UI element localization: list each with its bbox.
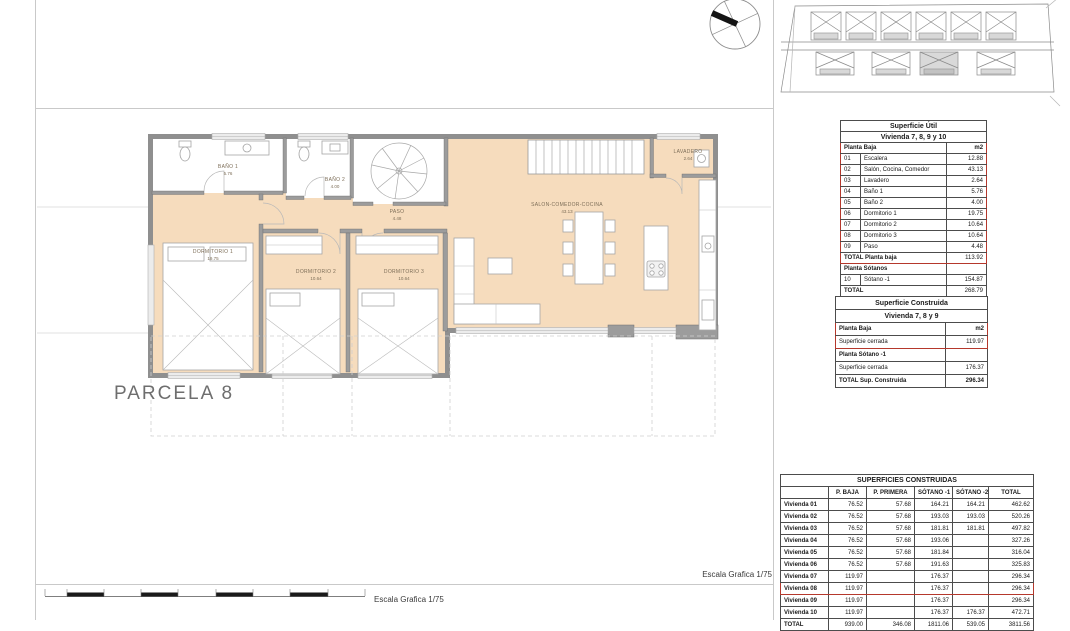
table-row: Vivienda 0476.5257.68193.06327.26 xyxy=(781,535,1034,547)
table-title-row: Superficie Construida xyxy=(836,297,988,310)
table-cell: Paso xyxy=(861,242,947,253)
table-cell: 10.64 xyxy=(947,231,987,242)
kitchen-counter xyxy=(699,180,716,330)
table-cell: 76.52 xyxy=(829,499,867,511)
table-row: Vivienda 0376.5257.68181.81181.81497.82 xyxy=(781,523,1034,535)
table-row: 10Sótano -1154.87 xyxy=(841,275,987,286)
table-cell: 296.34 xyxy=(989,571,1034,583)
staircase xyxy=(528,140,644,174)
table-row: Superficie cerrada176.37 xyxy=(836,362,988,375)
superficies-construidas-table: SUPERFICIES CONSTRUIDASP. BAJAP. PRIMERA… xyxy=(780,474,1034,631)
room-label: DORMITORIO 210.64 xyxy=(296,269,336,281)
table-cell: 181.84 xyxy=(915,547,953,559)
table-cell: 181.81 xyxy=(953,523,989,535)
table-cell: 164.21 xyxy=(915,499,953,511)
table-cell: P. BAJA xyxy=(829,487,867,499)
table-cell: TOTAL xyxy=(841,286,947,297)
table-cell: 57.68 xyxy=(867,511,915,523)
site-house-row-top xyxy=(811,12,1016,40)
kitchen-island xyxy=(644,226,668,290)
table-cell: 164.21 xyxy=(953,499,989,511)
table-row: 07Dormitorio 210.64 xyxy=(841,220,987,231)
table-cell: Dormitorio 2 xyxy=(861,220,947,231)
grand-total-row: TOTAL268.79 xyxy=(841,286,987,297)
table-row: TOTAL939.00346.081811.06539.053811.56 xyxy=(781,619,1034,631)
table-cell xyxy=(953,583,989,595)
table-row: 05Baño 24.00 xyxy=(841,198,987,209)
table-cell: 176.37 xyxy=(946,362,988,375)
section-header-row: Planta Sótanos xyxy=(841,264,987,275)
table-cell: Planta Sótano -1 xyxy=(836,349,946,362)
toilet-icon xyxy=(298,141,310,161)
table-cell: 5.76 xyxy=(947,187,987,198)
architectural-drawing-sheet: { "labels": { "parcela": "PARCELA 8", "e… xyxy=(0,0,1070,620)
table-row: Vivienda 0676.5257.68191.63325.83 xyxy=(781,559,1034,571)
table-cell: 12.88 xyxy=(947,154,987,165)
table-cell: 02 xyxy=(841,165,861,176)
table-cell: Planta Sótanos xyxy=(841,264,947,275)
table-cell: 193.03 xyxy=(953,511,989,523)
table-cell: Superficie cerrada xyxy=(836,336,946,349)
table-cell: 191.63 xyxy=(915,559,953,571)
table-cell: 43.13 xyxy=(947,165,987,176)
table-cell: 57.68 xyxy=(867,523,915,535)
room-name: BAÑO 2 xyxy=(325,177,345,183)
table-cell: 4.48 xyxy=(947,242,987,253)
room-area: 4.48 xyxy=(390,216,405,221)
table-cell: 76.52 xyxy=(829,511,867,523)
table-cell: Baño 1 xyxy=(861,187,947,198)
table-cell xyxy=(867,583,915,595)
table-row: 02Salón, Cocina, Comedor43.13 xyxy=(841,165,987,176)
table-cell: Vivienda 05 xyxy=(781,547,829,559)
room-label: DORMITORIO 310.64 xyxy=(384,269,424,281)
table-cell: Baño 2 xyxy=(861,198,947,209)
table-row: 01Escalera12.88 xyxy=(841,154,987,165)
table-cell: 113.92 xyxy=(947,253,987,264)
table-cell: 181.81 xyxy=(915,523,953,535)
scale-bar xyxy=(45,589,365,597)
table-cell: TOTAL xyxy=(781,619,829,631)
table-cell: Escalera xyxy=(861,154,947,165)
table-cell: 296.34 xyxy=(989,595,1034,607)
table-row: Vivienda 0176.5257.68164.21164.21462.62 xyxy=(781,499,1034,511)
table-cell: 346.08 xyxy=(867,619,915,631)
room-label: BAÑO 15.76 xyxy=(218,164,238,176)
table-cell: Superficie Construida xyxy=(836,297,988,310)
table-cell: Vivienda 7, 8, 9 y 10 xyxy=(841,132,987,143)
table-cell: Vivienda 03 xyxy=(781,523,829,535)
table-cell: 296.34 xyxy=(989,583,1034,595)
table-cell xyxy=(947,264,987,275)
room-area: 10.64 xyxy=(296,276,336,281)
bed xyxy=(163,243,253,370)
wardrobe xyxy=(356,236,438,254)
table-cell xyxy=(867,595,915,607)
room-label: LAVADERO2.64 xyxy=(674,149,703,161)
room-area: 5.76 xyxy=(218,171,238,176)
table-cell xyxy=(953,559,989,571)
table-cell: 57.68 xyxy=(867,535,915,547)
table-cell xyxy=(867,571,915,583)
sink-icon xyxy=(322,141,348,154)
site-house-highlighted xyxy=(920,52,958,75)
superficie-util-table: Superficie ÚtilVivienda 7, 8, 9 y 10Plan… xyxy=(840,120,987,297)
table-cell: SUPERFICIES CONSTRUIDAS xyxy=(781,475,1034,487)
table-cell: 462.62 xyxy=(989,499,1034,511)
table-cell: Dormitorio 1 xyxy=(861,209,947,220)
table-cell xyxy=(946,349,988,362)
table-row: Planta Bajam2 xyxy=(836,323,988,336)
table-cell: 520.26 xyxy=(989,511,1034,523)
room-area: 4.00 xyxy=(325,184,345,189)
table-cell: 176.37 xyxy=(953,607,989,619)
room-name: DORMITORIO 1 xyxy=(193,249,233,255)
table-cell: Vivienda 08 xyxy=(781,583,829,595)
table-row: 04Baño 15.76 xyxy=(841,187,987,198)
table-cell: m2 xyxy=(946,323,988,336)
table-cell: 09 xyxy=(841,242,861,253)
table-row: 09Paso4.48 xyxy=(841,242,987,253)
superficie-construida-table: Superficie ConstruidaVivienda 7, 8 y 9Pl… xyxy=(835,296,988,388)
section-header-row: Planta Bajam2 xyxy=(841,143,987,154)
parcela-label: PARCELA 8 xyxy=(114,383,234,405)
table-cell: 76.52 xyxy=(829,535,867,547)
table-subtitle-row: Vivienda 7, 8, 9 y 10 xyxy=(841,132,987,143)
table-cell: 176.37 xyxy=(915,595,953,607)
room-name: PASO xyxy=(390,209,405,215)
table-cell: 119.97 xyxy=(829,583,867,595)
table-cell xyxy=(953,535,989,547)
table-cell: 539.05 xyxy=(953,619,989,631)
table-cell: 2.64 xyxy=(947,176,987,187)
room-name: SALON-COMEDOR-COCINA xyxy=(531,202,603,208)
bed xyxy=(358,289,438,374)
table-cell: 119.97 xyxy=(829,607,867,619)
total-row: TOTAL Planta baja113.92 xyxy=(841,253,987,264)
table-cell: Planta Baja xyxy=(841,143,947,154)
table-cell: Vivienda 09 xyxy=(781,595,829,607)
table-cell: 4.00 xyxy=(947,198,987,209)
table-cell: 57.68 xyxy=(867,559,915,571)
table-cell: 176.37 xyxy=(915,571,953,583)
table-cell xyxy=(781,487,829,499)
table-row: Planta Sótano -1 xyxy=(836,349,988,362)
table-cell: Salón, Cocina, Comedor xyxy=(861,165,947,176)
table-row: 06Dormitorio 119.75 xyxy=(841,209,987,220)
table-cell: TOTAL Sup. Construida xyxy=(836,375,946,388)
table-row: Superficie cerrada119.97 xyxy=(836,336,988,349)
table-cell: 01 xyxy=(841,154,861,165)
room-area: 19.75 xyxy=(193,256,233,261)
table-cell: 193.06 xyxy=(915,535,953,547)
table-cell: 154.87 xyxy=(947,275,987,286)
table-cell: Vivienda 07 xyxy=(781,571,829,583)
site-house-row-bottom xyxy=(816,52,1015,75)
scale-text-plan: Escala Grafica 1/75 xyxy=(688,570,772,579)
table-cell: Superficie cerrada xyxy=(836,362,946,375)
sink-icon xyxy=(225,141,269,155)
room-name: BAÑO 1 xyxy=(218,164,238,170)
table-row: Vivienda 07119.97176.37296.34 xyxy=(781,571,1034,583)
table-cell: Lavadero xyxy=(861,176,947,187)
table-cell: 05 xyxy=(841,198,861,209)
table-cell: 3811.56 xyxy=(989,619,1034,631)
table-row: Vivienda 08119.97176.37296.34 xyxy=(781,583,1034,595)
table-cell: P. PRIMERA xyxy=(867,487,915,499)
table-cell: 19.75 xyxy=(947,209,987,220)
table-cell: 10.64 xyxy=(947,220,987,231)
table-cell: 76.52 xyxy=(829,547,867,559)
room-area: 2.64 xyxy=(674,156,703,161)
table-cell: 08 xyxy=(841,231,861,242)
table-cell: Vivienda 06 xyxy=(781,559,829,571)
table-cell xyxy=(953,547,989,559)
table-cell: 176.37 xyxy=(915,607,953,619)
table-cell: 04 xyxy=(841,187,861,198)
coffee-table xyxy=(488,258,512,274)
room-area: 10.64 xyxy=(384,276,424,281)
scale-text-bar: Escala Grafica 1/75 xyxy=(374,595,444,604)
table-row: 03Lavadero2.64 xyxy=(841,176,987,187)
table-cell: Vivienda 04 xyxy=(781,535,829,547)
table-cell: 119.97 xyxy=(946,336,988,349)
toilet-icon xyxy=(179,141,191,161)
table-cell: Vivienda 02 xyxy=(781,511,829,523)
table-cell: 268.79 xyxy=(947,286,987,297)
table-cell: 06 xyxy=(841,209,861,220)
table-row: Vivienda 09119.97176.37296.34 xyxy=(781,595,1034,607)
room-area: 43.13 xyxy=(531,209,603,214)
dining-table xyxy=(563,212,615,284)
table-cell: Vivienda 01 xyxy=(781,499,829,511)
table-cell: SÓTANO -1 xyxy=(915,487,953,499)
table-row: Vivienda 0576.5257.68181.84316.04 xyxy=(781,547,1034,559)
site-plan-overview xyxy=(781,0,1060,106)
table-cell: 119.97 xyxy=(829,571,867,583)
room-label: BAÑO 24.00 xyxy=(325,177,345,189)
table-cell: 1811.06 xyxy=(915,619,953,631)
table-cell: 07 xyxy=(841,220,861,231)
table-cell: Vivienda 7, 8 y 9 xyxy=(836,310,988,323)
table-cell: 497.82 xyxy=(989,523,1034,535)
table-cell: 76.52 xyxy=(829,559,867,571)
table-cell xyxy=(953,595,989,607)
table-title-row: SUPERFICIES CONSTRUIDAS xyxy=(781,475,1034,487)
table-cell: 10 xyxy=(841,275,861,286)
room-name: DORMITORIO 2 xyxy=(296,269,336,275)
wall-pier xyxy=(608,325,634,337)
table-row: Vivienda 10119.97176.37176.37472.71 xyxy=(781,607,1034,619)
table-cell: Dormitorio 3 xyxy=(861,231,947,242)
table-cell: 76.52 xyxy=(829,523,867,535)
table-cell: 939.00 xyxy=(829,619,867,631)
bed xyxy=(266,289,340,374)
table-row: TOTAL Sup. Construida296.34 xyxy=(836,375,988,388)
table-cell: m2 xyxy=(947,143,987,154)
room-name: DORMITORIO 3 xyxy=(384,269,424,275)
table-cell: SÓTANO -2 xyxy=(953,487,989,499)
table-cell: 176.37 xyxy=(915,583,953,595)
table-cell xyxy=(953,571,989,583)
room-label: SALON-COMEDOR-COCINA43.13 xyxy=(531,202,603,214)
wardrobe xyxy=(266,236,322,254)
table-cell: 57.68 xyxy=(867,547,915,559)
table-row: 08Dormitorio 310.64 xyxy=(841,231,987,242)
table-row: Vivienda 0276.5257.68193.03193.03520.26 xyxy=(781,511,1034,523)
table-cell: 296.34 xyxy=(946,375,988,388)
table-cell: 57.68 xyxy=(867,499,915,511)
column-header-row: P. BAJAP. PRIMERASÓTANO -1SÓTANO -2TOTAL xyxy=(781,487,1034,499)
table-cell: 03 xyxy=(841,176,861,187)
table-cell: 119.97 xyxy=(829,595,867,607)
table-cell: Vivienda 10 xyxy=(781,607,829,619)
table-cell: Sótano -1 xyxy=(861,275,947,286)
table-cell xyxy=(867,607,915,619)
table-cell: Superficie Útil xyxy=(841,121,987,132)
table-cell: 316.04 xyxy=(989,547,1034,559)
room-label: DORMITORIO 119.75 xyxy=(193,249,233,261)
table-title-row: Superficie Útil xyxy=(841,121,987,132)
north-arrow-icon xyxy=(710,0,760,49)
table-cell: TOTAL xyxy=(989,487,1034,499)
table-cell: TOTAL Planta baja xyxy=(841,253,947,264)
table-cell: 325.83 xyxy=(989,559,1034,571)
room-label: PASO4.48 xyxy=(390,209,405,221)
table-cell: 193.03 xyxy=(915,511,953,523)
table-subtitle-row: Vivienda 7, 8 y 9 xyxy=(836,310,988,323)
table-cell: Planta Baja xyxy=(836,323,946,336)
room-name: LAVADERO xyxy=(674,149,703,155)
table-cell: 472.71 xyxy=(989,607,1034,619)
table-cell: 327.26 xyxy=(989,535,1034,547)
